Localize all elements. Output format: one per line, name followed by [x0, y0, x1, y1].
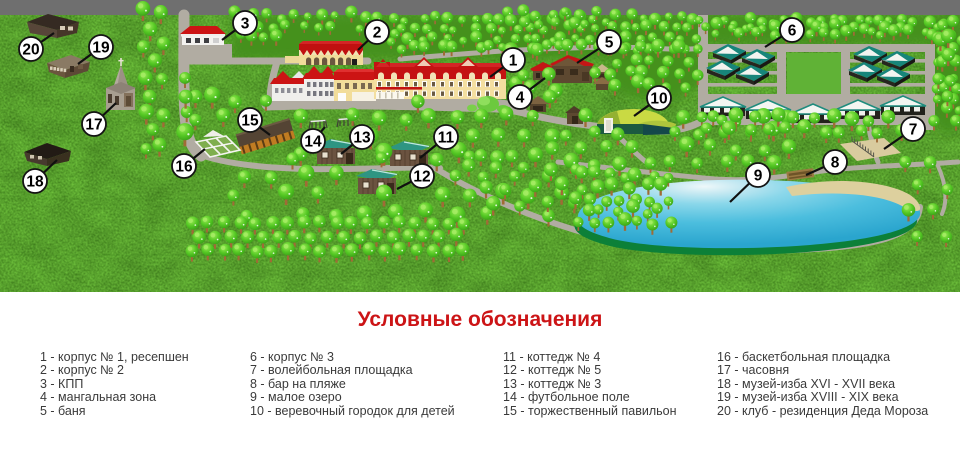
- svg-text:13: 13: [353, 129, 371, 146]
- svg-text:11: 11: [438, 129, 455, 146]
- svg-text:4: 4: [516, 89, 525, 106]
- svg-text:5: 5: [605, 34, 614, 51]
- svg-text:6: 6: [788, 22, 797, 39]
- svg-text:20: 20: [22, 41, 39, 58]
- svg-text:19: 19: [92, 39, 110, 56]
- svg-text:2: 2: [373, 24, 382, 41]
- svg-text:10: 10: [650, 90, 667, 107]
- svg-text:1: 1: [509, 52, 518, 69]
- svg-text:12: 12: [413, 168, 430, 185]
- svg-text:14: 14: [304, 133, 322, 150]
- svg-text:15: 15: [241, 112, 259, 129]
- svg-text:8: 8: [831, 154, 840, 171]
- svg-text:18: 18: [26, 173, 44, 190]
- svg-text:17: 17: [85, 116, 102, 133]
- svg-text:7: 7: [909, 121, 918, 138]
- svg-text:16: 16: [175, 158, 193, 175]
- svg-text:9: 9: [754, 167, 763, 184]
- svg-text:3: 3: [241, 15, 250, 32]
